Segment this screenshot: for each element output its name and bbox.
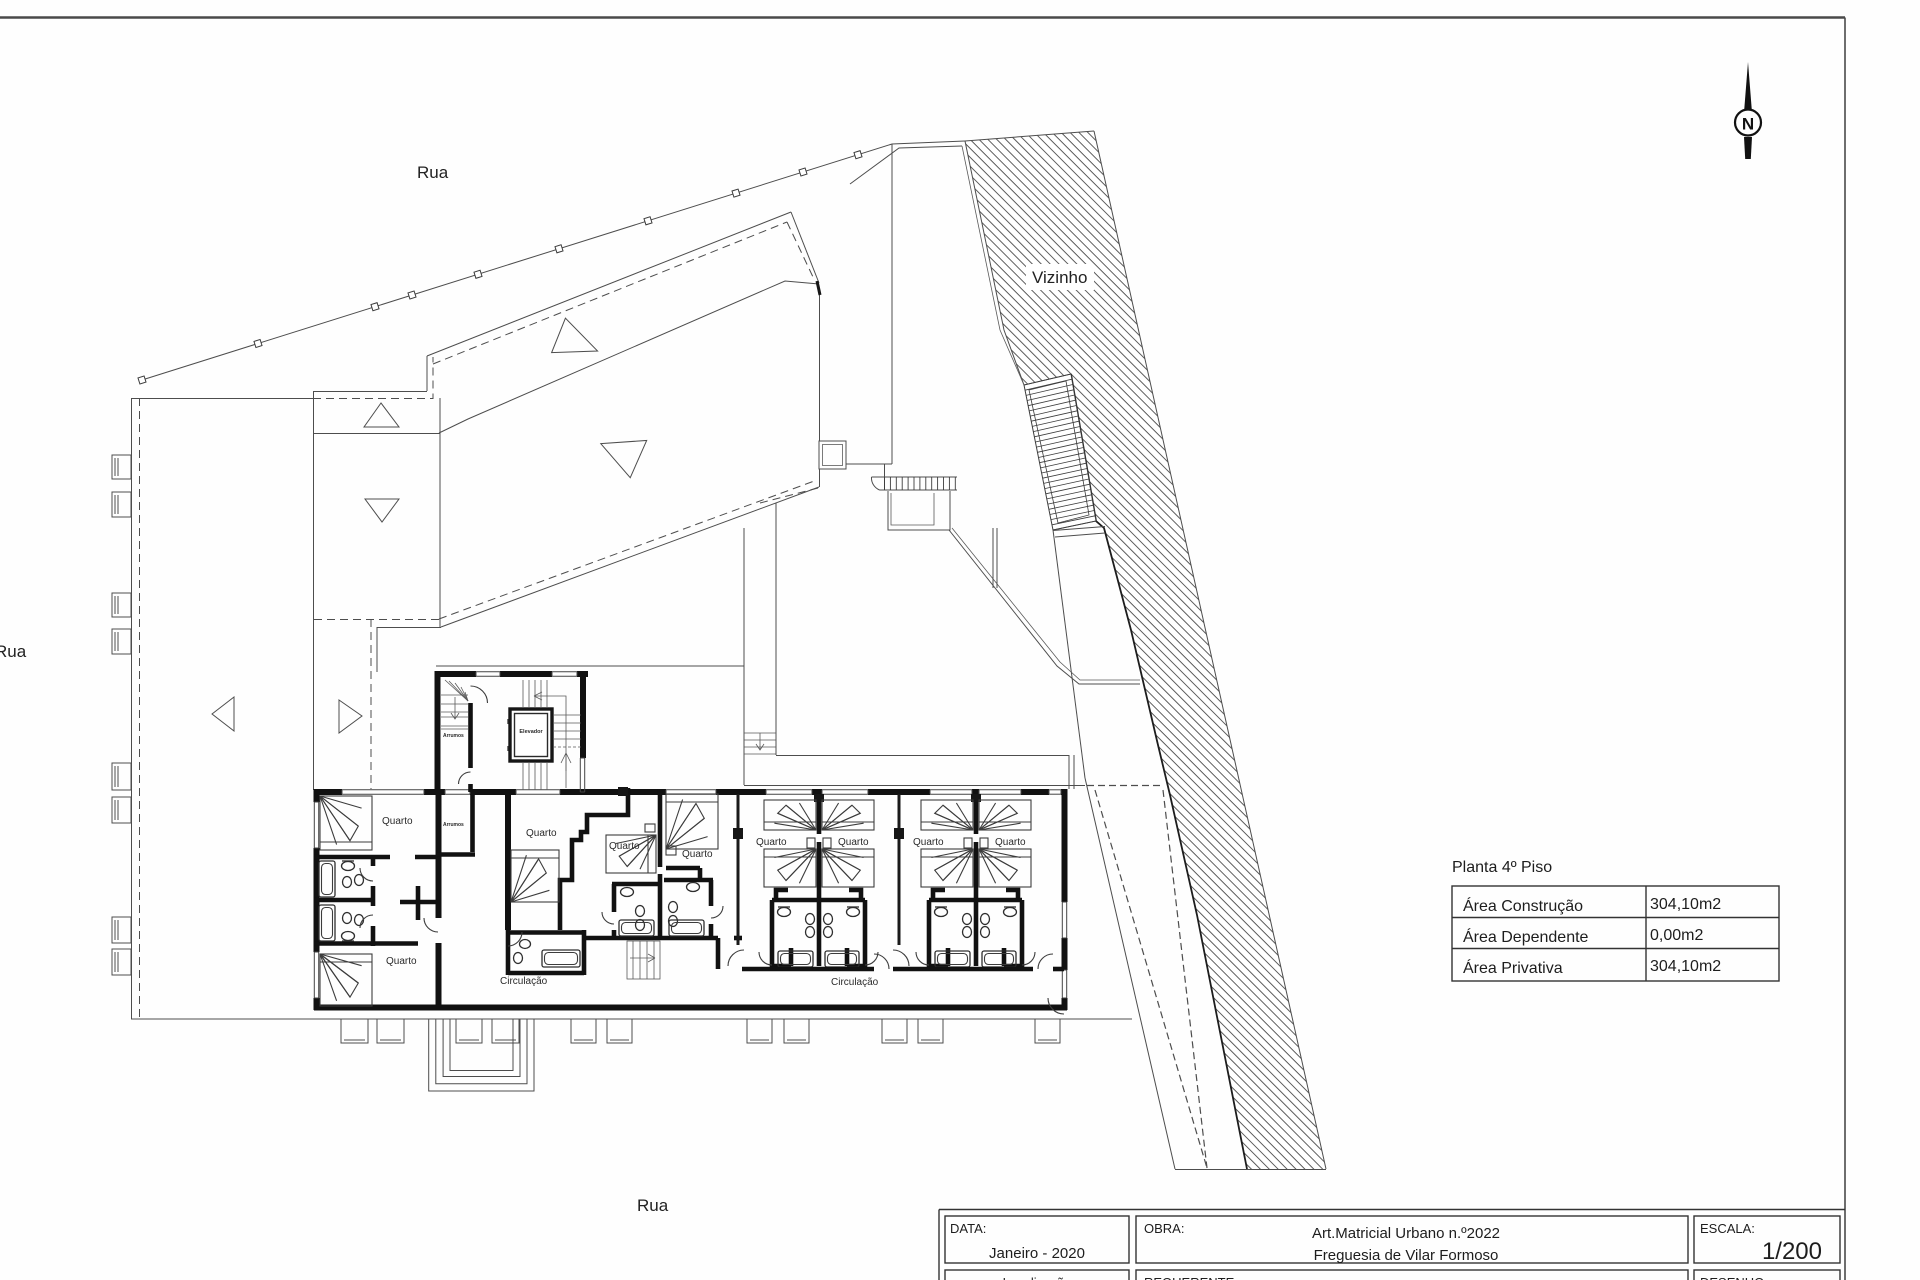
svg-text:Planta 4º Piso: Planta 4º Piso <box>1452 859 1552 876</box>
svg-text:Arrumos: Arrumos <box>443 822 464 828</box>
svg-text:N: N <box>1742 115 1754 134</box>
svg-text:Circulação: Circulação <box>500 976 548 987</box>
svg-text:Rua: Rua <box>0 642 27 661</box>
svg-text:Quarto: Quarto <box>382 816 413 827</box>
svg-text:Localização: Localização <box>1003 1275 1072 1280</box>
svg-text:Quarto: Quarto <box>756 837 787 848</box>
svg-text:Vizinho: Vizinho <box>1032 268 1087 287</box>
svg-text:Quarto: Quarto <box>386 956 417 967</box>
svg-text:Área Privativa: Área Privativa <box>1463 958 1563 977</box>
svg-text:Circulação: Circulação <box>831 977 879 988</box>
svg-text:Arrumos: Arrumos <box>443 733 464 739</box>
svg-text:Quarto: Quarto <box>838 837 869 848</box>
svg-text:Quarto: Quarto <box>682 849 713 860</box>
svg-text:Art.Matricial Urbano n.º2022: Art.Matricial Urbano n.º2022 <box>1312 1225 1500 1242</box>
svg-text:DATA:: DATA: <box>950 1221 986 1236</box>
svg-text:ESCALA:: ESCALA: <box>1700 1221 1755 1236</box>
svg-text:Quarto: Quarto <box>913 837 944 848</box>
svg-text:Rua: Rua <box>637 1196 669 1215</box>
svg-text:1/200: 1/200 <box>1762 1238 1822 1265</box>
svg-text:Janeiro - 2020: Janeiro - 2020 <box>989 1245 1085 1262</box>
svg-text:Quarto: Quarto <box>995 837 1026 848</box>
svg-text:Rua: Rua <box>417 163 449 182</box>
svg-text:Quarto: Quarto <box>526 828 557 839</box>
svg-text:304,10m2: 304,10m2 <box>1650 958 1721 975</box>
svg-text:OBRA:: OBRA: <box>1144 1221 1184 1236</box>
svg-text:Quarto: Quarto <box>609 841 640 852</box>
svg-text:Elevador: Elevador <box>519 729 543 735</box>
svg-text:Área Construção: Área Construção <box>1463 896 1583 915</box>
svg-text:DESENHO: DESENHO <box>1700 1275 1764 1280</box>
svg-text:304,10m2: 304,10m2 <box>1650 896 1721 913</box>
svg-text:Área Dependente: Área Dependente <box>1463 927 1589 946</box>
svg-text:Freguesia de Vilar Formoso: Freguesia de Vilar Formoso <box>1314 1247 1499 1264</box>
svg-text:REQUERENTE:: REQUERENTE: <box>1144 1275 1238 1280</box>
svg-text:0,00m2: 0,00m2 <box>1650 927 1703 944</box>
